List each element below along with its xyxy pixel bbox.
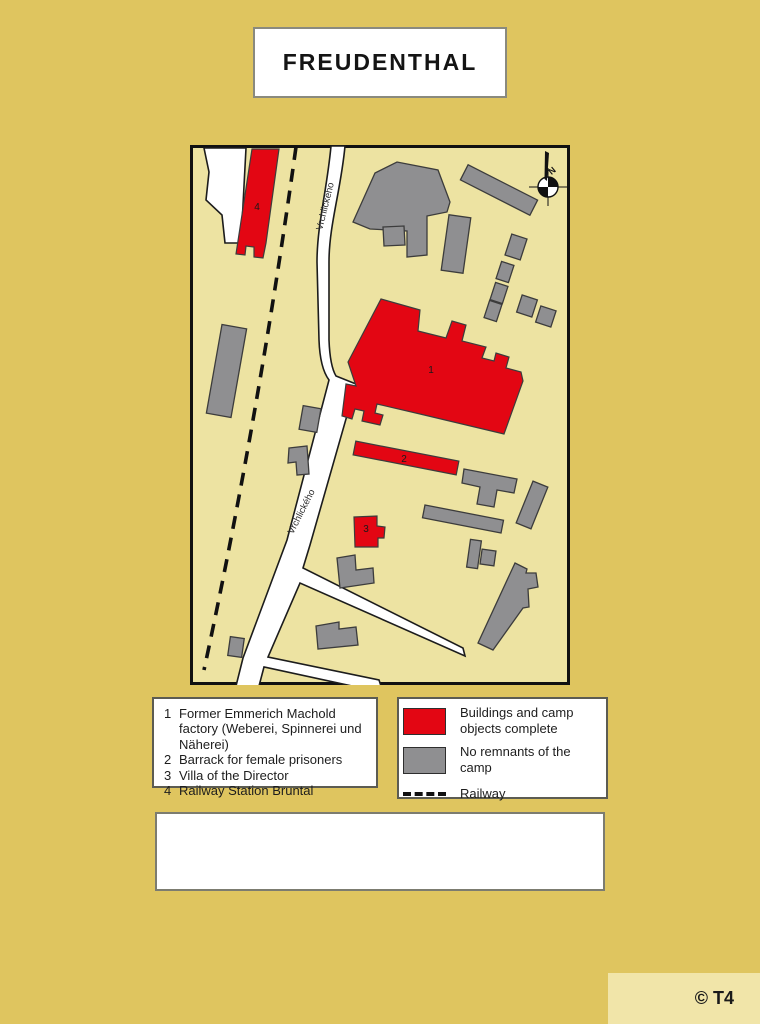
legend-symbol-text: No remnants of the camp <box>460 744 600 776</box>
legend-item-number: 3 <box>164 768 179 783</box>
legend-item-number: 2 <box>164 752 179 767</box>
title-box: FREUDENTHAL <box>253 27 507 98</box>
label-villa: 3 <box>363 524 369 535</box>
gray-building <box>480 549 496 566</box>
page: FREUDENTHAL <box>0 0 760 1024</box>
map: Vrchlického Vrchlického N 1 2 3 4 <box>190 145 570 685</box>
legend-row-railway: Railway <box>403 786 600 802</box>
legend-item-text: Barrack for female prisoners <box>179 752 370 767</box>
gray-building <box>299 406 321 433</box>
gray-building <box>383 226 405 246</box>
gray-building <box>228 637 245 658</box>
legend-item-4: 4 Railway Station Bruntal <box>164 783 370 798</box>
legend-item-number: 4 <box>164 783 179 798</box>
credit-panel: © T4 <box>608 973 760 1024</box>
caption-box <box>155 812 605 891</box>
legend-item-text: Villa of the Director <box>179 768 370 783</box>
legend-row-red: Buildings and camp objects complete <box>403 705 600 737</box>
legend-item-3: 3 Villa of the Director <box>164 768 370 783</box>
legend-numbered-box: 1 Former Emmerich Machold factory (Weber… <box>152 697 378 788</box>
label-factory: 1 <box>428 365 434 376</box>
gray-swatch-icon <box>403 747 446 774</box>
label-station: 4 <box>254 202 260 213</box>
credit-text: © T4 <box>695 988 734 1009</box>
red-swatch-icon <box>403 708 446 735</box>
legend-item-text: Railway Station Bruntal <box>179 783 370 798</box>
page-title: FREUDENTHAL <box>283 49 478 76</box>
legend-symbol-text: Buildings and camp objects complete <box>460 705 600 737</box>
label-barrack: 2 <box>401 454 407 465</box>
legend-symbols-box: Buildings and camp objects complete No r… <box>397 697 608 799</box>
legend-item-2: 2 Barrack for female prisoners <box>164 752 370 767</box>
map-svg: Vrchlického Vrchlického N 1 2 3 4 <box>190 145 570 685</box>
railway-dash-icon <box>403 792 446 796</box>
legend-item-1: 1 Former Emmerich Machold factory (Weber… <box>164 706 370 752</box>
legend-item-text: Former Emmerich Machold factory (Weberei… <box>179 706 370 752</box>
legend-row-gray: No remnants of the camp <box>403 744 600 776</box>
legend-symbol-text: Railway <box>460 786 506 802</box>
legend-item-number: 1 <box>164 706 179 752</box>
